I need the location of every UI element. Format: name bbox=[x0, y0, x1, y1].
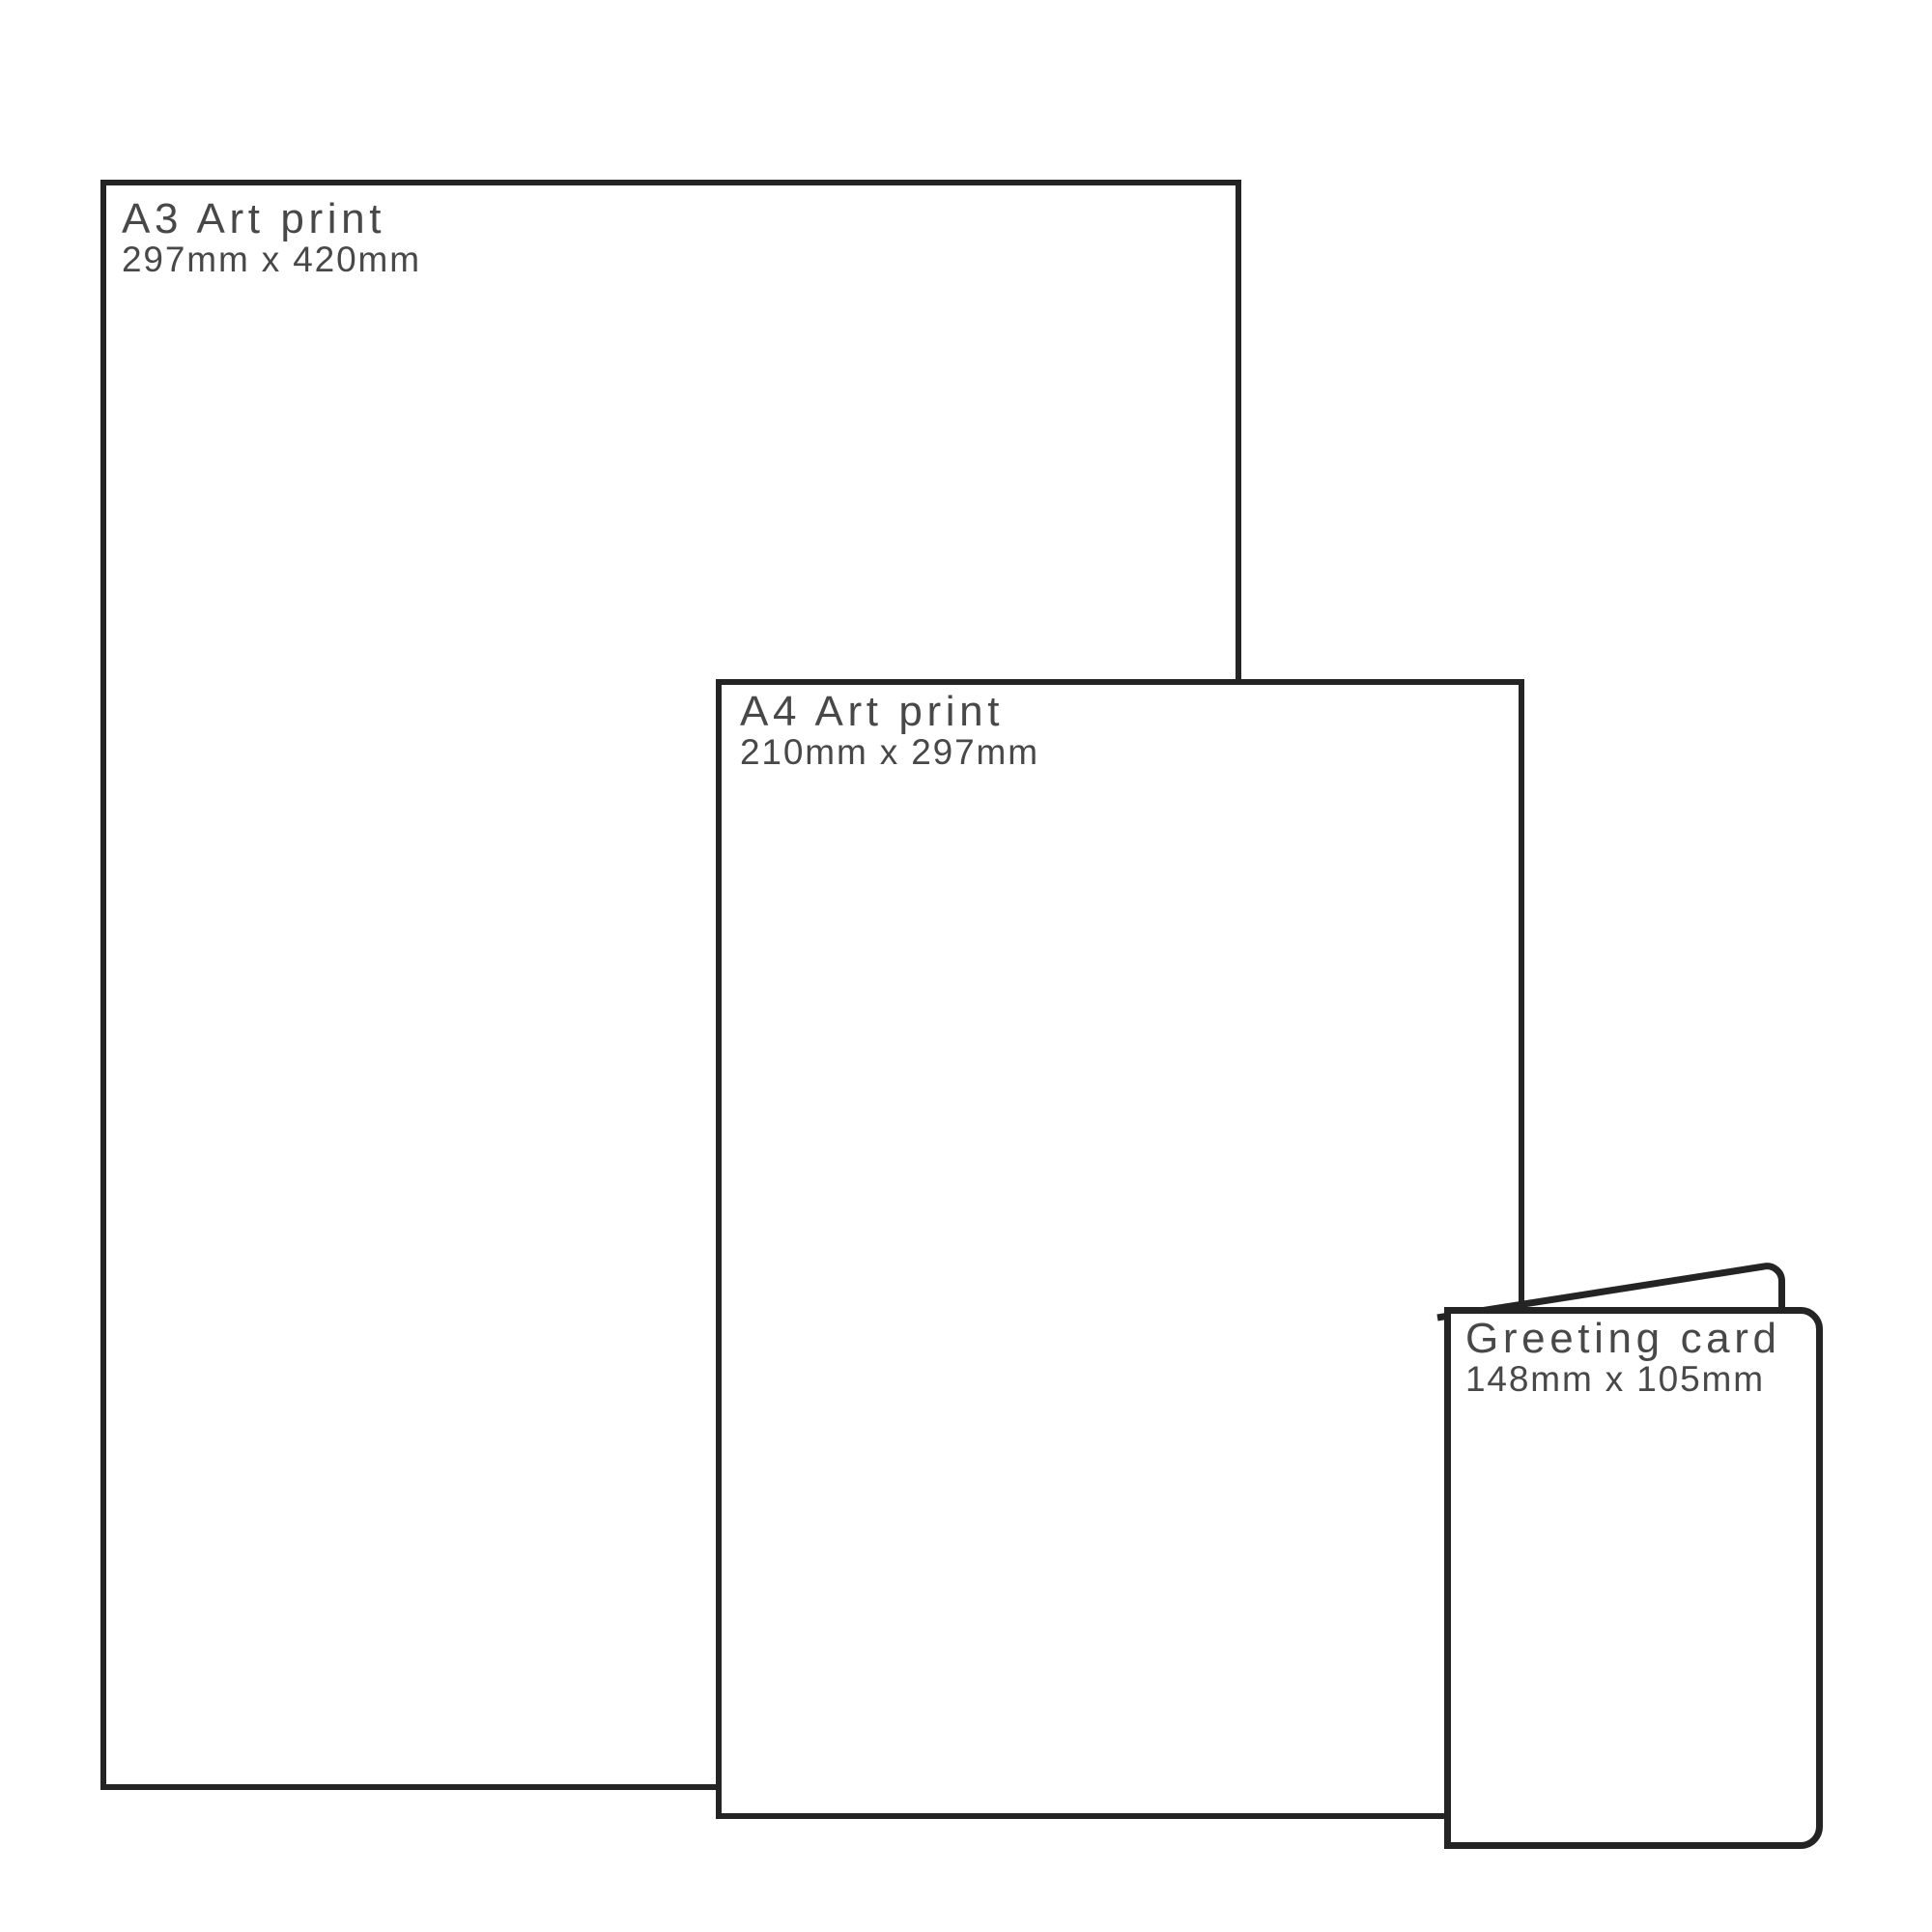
greeting-card-label: Greeting card 148mm x 105mm bbox=[1465, 1317, 1781, 1399]
a3-print-label: A3 Art print 297mm x 420mm bbox=[122, 197, 421, 279]
greeting-card-dimensions: 148mm x 105mm bbox=[1465, 1361, 1781, 1399]
a4-print-label: A4 Art print 210mm x 297mm bbox=[740, 690, 1039, 772]
greeting-card-title: Greeting card bbox=[1465, 1317, 1781, 1361]
a4-print-outline bbox=[716, 679, 1524, 1819]
a4-print-title: A4 Art print bbox=[740, 690, 1039, 734]
a3-print-dimensions: 297mm x 420mm bbox=[122, 241, 421, 279]
a4-print-dimensions: 210mm x 297mm bbox=[740, 734, 1039, 772]
size-comparison-diagram: A3 Art print 297mm x 420mm A4 Art print … bbox=[0, 0, 1932, 1932]
a3-print-title: A3 Art print bbox=[122, 197, 421, 241]
